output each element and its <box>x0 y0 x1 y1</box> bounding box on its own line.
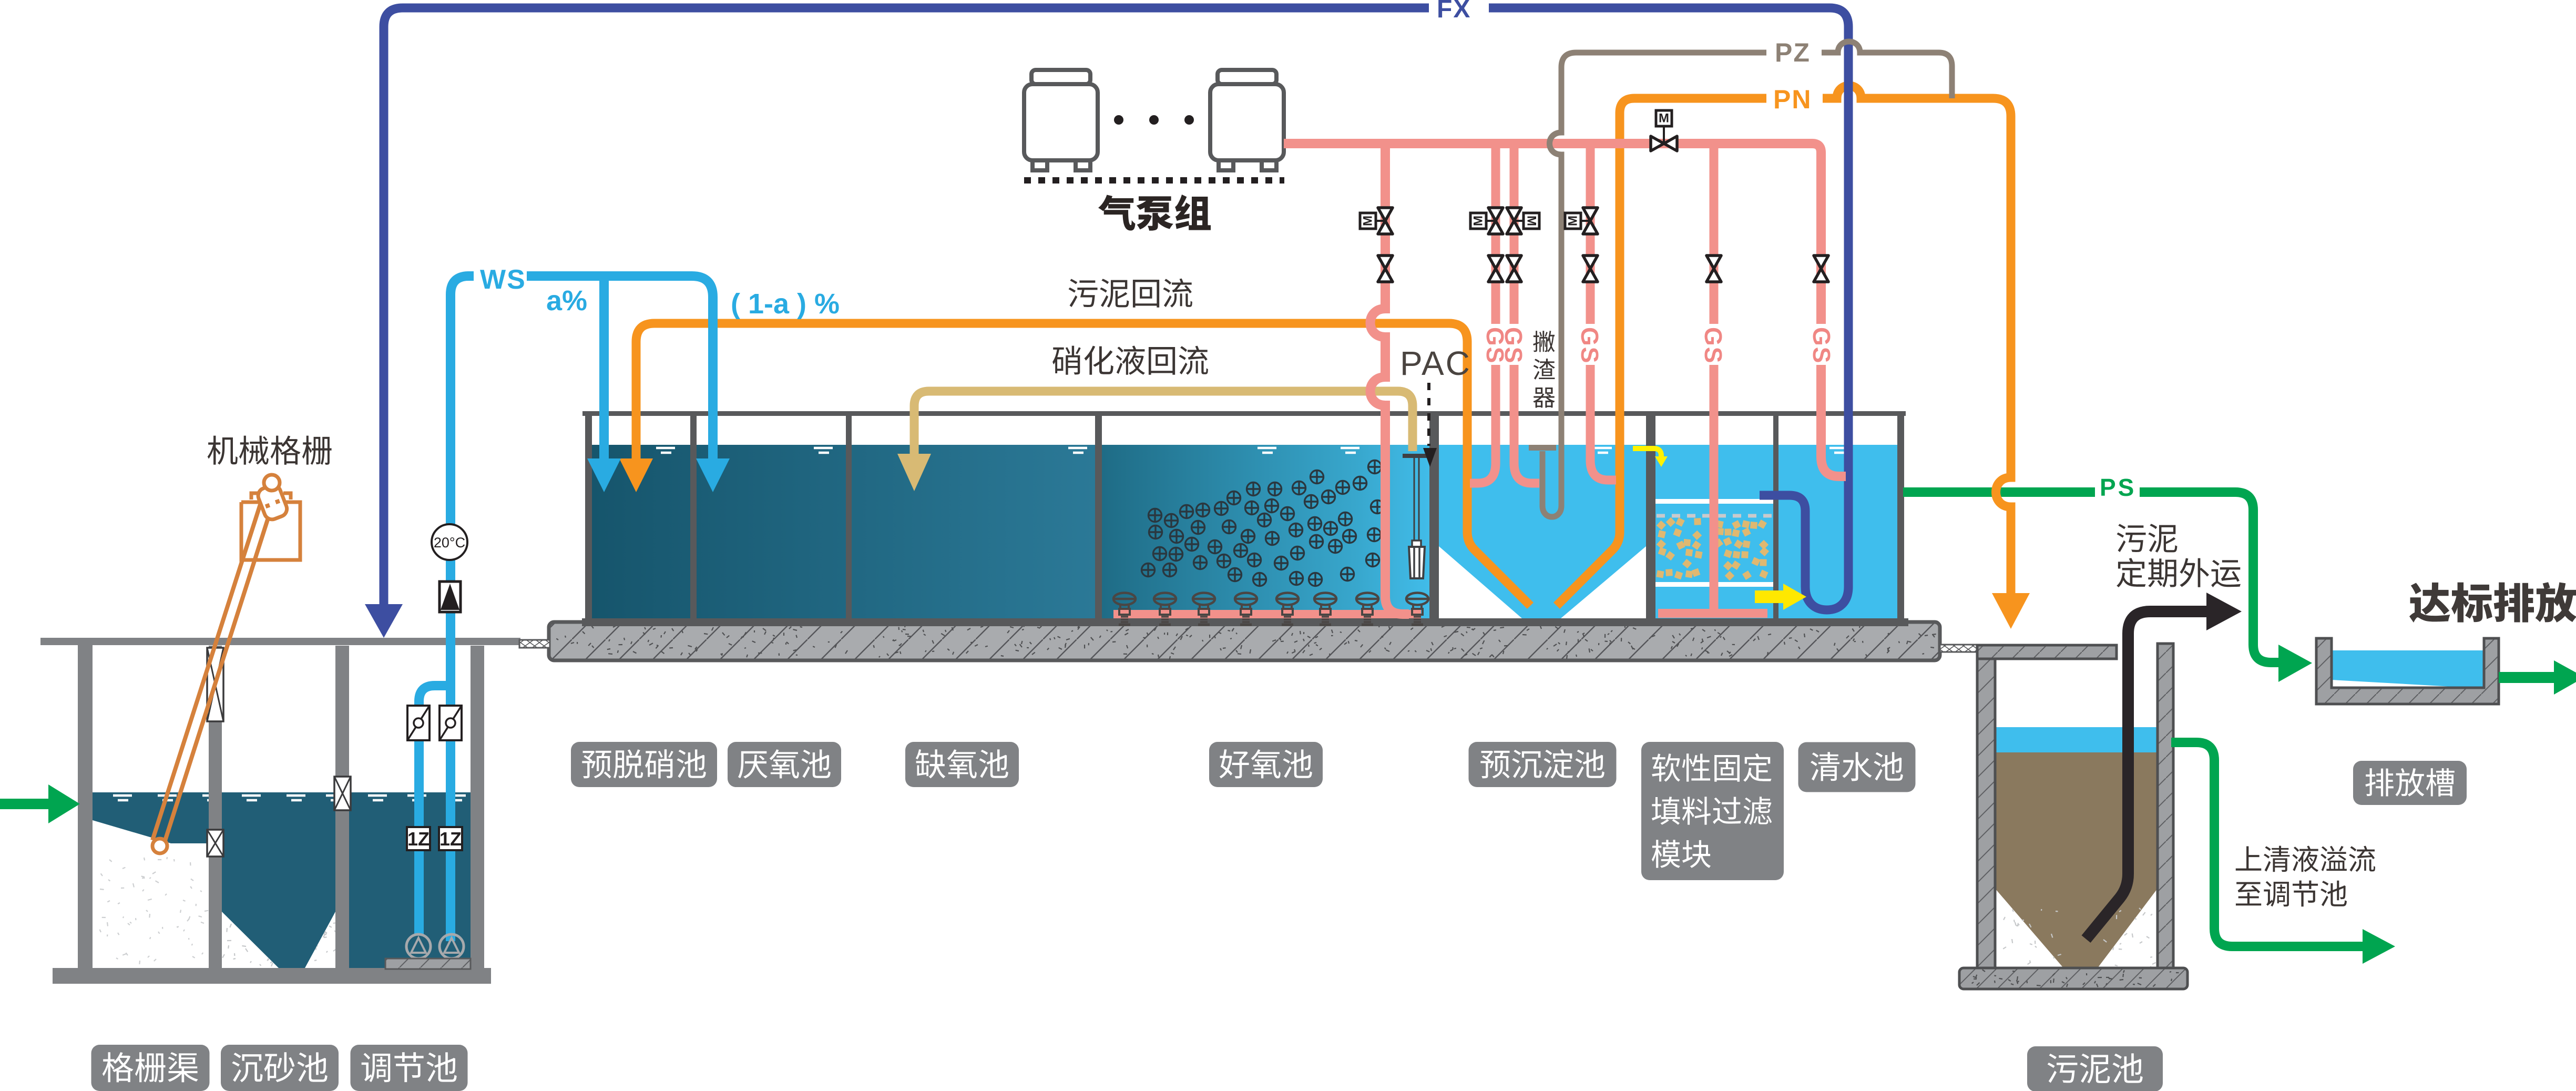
svg-text:M: M <box>1361 216 1375 226</box>
svg-text:WS: WS <box>480 264 526 295</box>
svg-text:M: M <box>1471 216 1486 226</box>
svg-text:GS: GS <box>1576 327 1603 364</box>
svg-text:PS: PS <box>2100 474 2136 501</box>
svg-text:M: M <box>1659 111 1669 126</box>
svg-text:PAC: PAC <box>1400 344 1471 382</box>
svg-text:M: M <box>1525 216 1539 226</box>
svg-text:20°C: 20°C <box>434 535 465 550</box>
svg-text:PN: PN <box>1773 85 1812 114</box>
svg-text:GS: GS <box>1700 327 1727 364</box>
svg-text:GS: GS <box>1808 327 1835 364</box>
svg-text:M: M <box>1566 216 1580 226</box>
svg-text:GS: GS <box>1500 327 1527 364</box>
svg-text:a%: a% <box>546 285 587 317</box>
svg-text:FX: FX <box>1437 0 1471 23</box>
svg-text:( 1-a ) %: ( 1-a ) % <box>731 288 840 320</box>
svg-text:PZ: PZ <box>1775 38 1811 67</box>
svg-text:1Z: 1Z <box>439 828 462 850</box>
svg-text:1Z: 1Z <box>407 828 430 850</box>
